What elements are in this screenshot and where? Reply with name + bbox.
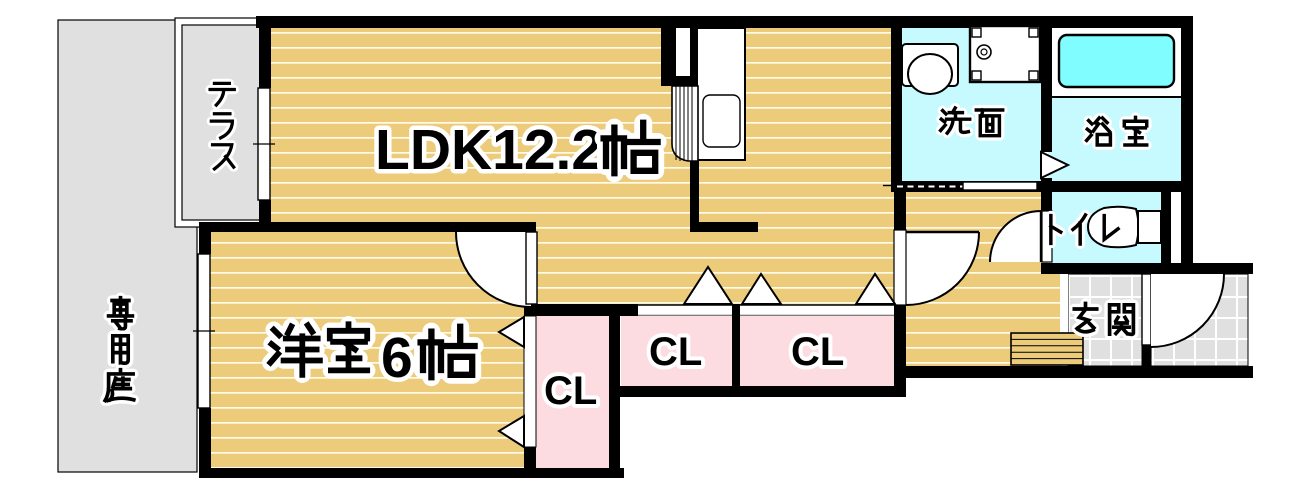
svg-text:CL: CL [649, 330, 702, 374]
svg-text:LDK12.2: LDK12.2 [375, 118, 603, 182]
svg-text:6: 6 [381, 326, 413, 390]
svg-text:CL: CL [544, 369, 597, 413]
svg-text:CL: CL [791, 330, 844, 374]
